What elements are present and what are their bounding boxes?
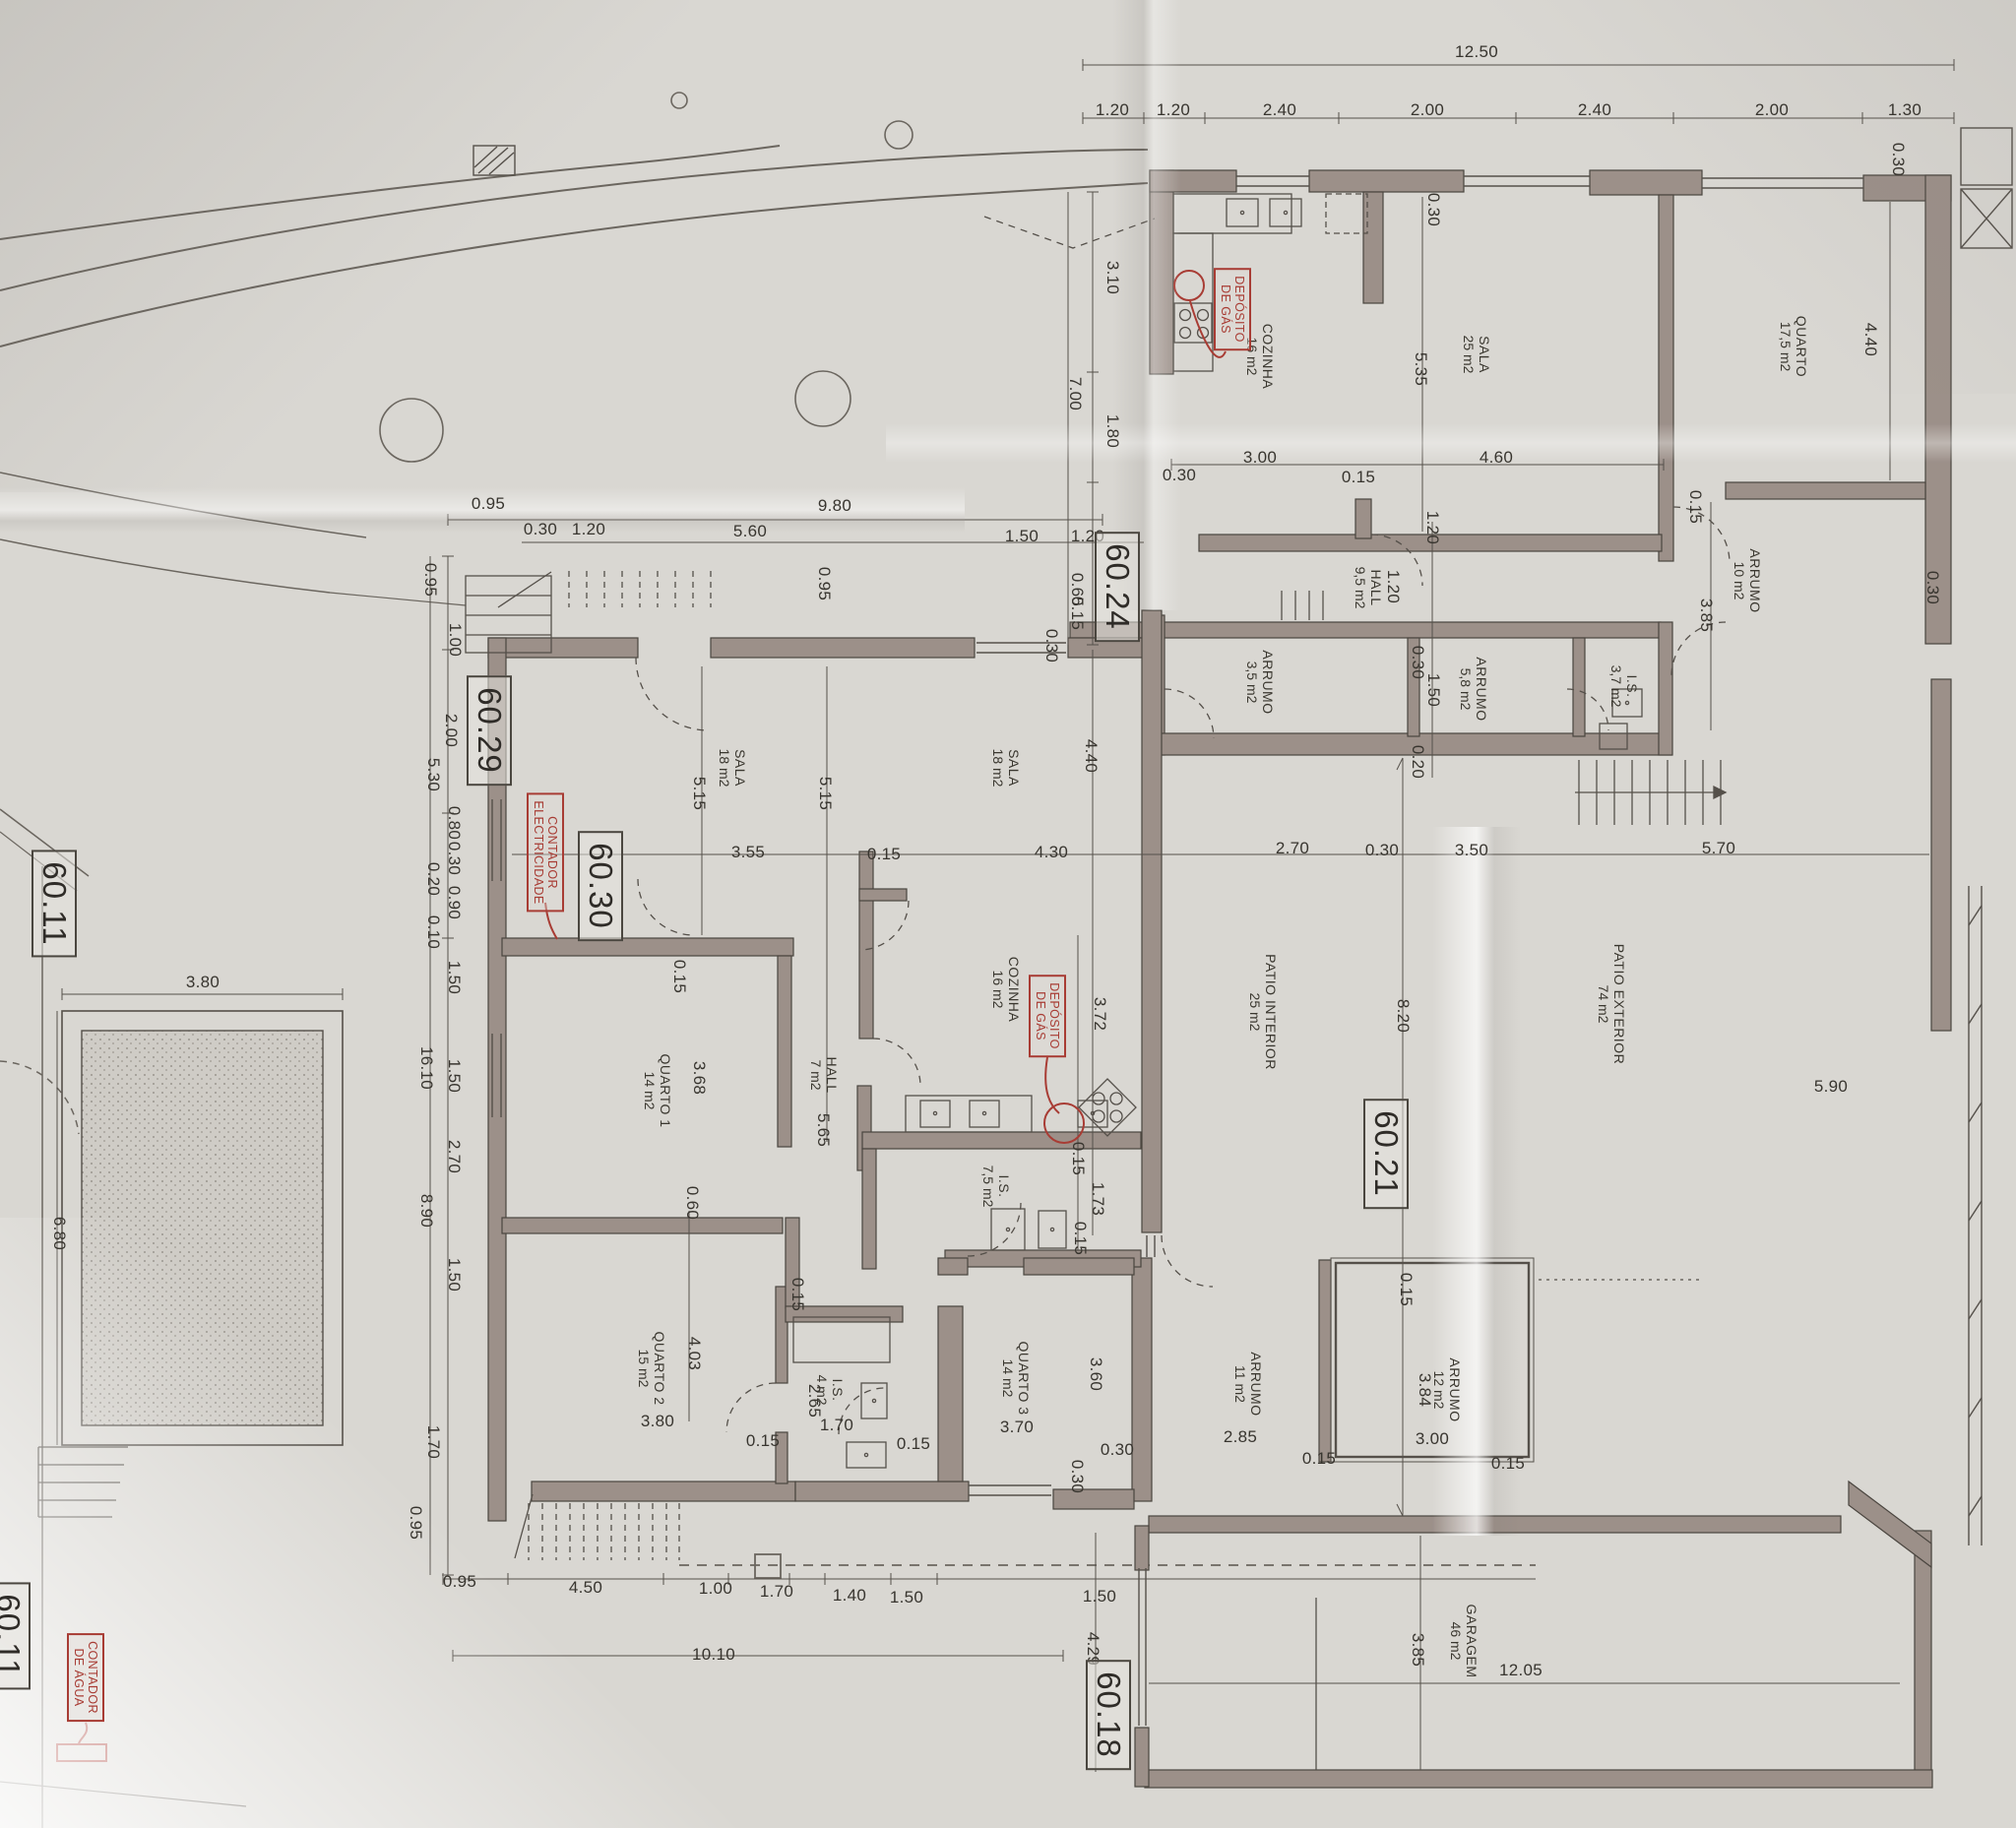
room-name: QUARTO 3: [1016, 1341, 1032, 1415]
dimension-label: 3.72: [1090, 997, 1109, 1031]
dimension-label: 5.30: [423, 758, 443, 791]
dimension-label: 5.90: [1814, 1077, 1848, 1097]
room-label: QUARTO17,5 m2: [1778, 316, 1809, 377]
dimension-label: 3.00: [1243, 448, 1277, 468]
room-name: PATIO INTERIOR: [1263, 954, 1279, 1070]
dimension-label: 4.40: [1860, 323, 1880, 356]
dimension-label: 3.80: [641, 1412, 674, 1431]
room-area: 16 m2: [990, 957, 1006, 1023]
dimension-label: 12.50: [1455, 42, 1498, 62]
room-name: SALA: [1006, 749, 1022, 788]
dimension-label: 1.20: [1422, 511, 1442, 544]
dimension-label: 2.00: [1755, 100, 1789, 120]
dimension-label: 5.65: [813, 1113, 833, 1147]
room-name: QUARTO 1: [658, 1053, 673, 1127]
red-annotation-line: ELECTRICIDADE: [532, 800, 545, 904]
plan-drawing: [0, 0, 2016, 1828]
room-area: 12 m2: [1431, 1357, 1447, 1421]
dimension-label: 0.20: [1408, 745, 1427, 779]
red-annotation-label: CONTADORELECTRICIDADE: [527, 792, 564, 912]
dimension-label: 4.40: [1081, 739, 1101, 773]
dimension-label: 8.90: [416, 1194, 436, 1228]
pool-steps: [38, 1447, 128, 1517]
dimension-label: 2.00: [1411, 100, 1444, 120]
dimension-label: 0.15: [746, 1431, 780, 1451]
dimension-label: 0.15: [1302, 1449, 1336, 1469]
dimension-label: 1.40: [833, 1586, 866, 1606]
dimension-label: 0.15: [1685, 490, 1705, 524]
dimension-label: 5.15: [689, 777, 709, 810]
red-annotation-label: DEPÓSITODE GÁS: [1214, 268, 1251, 350]
red-annotation-line: CONTADOR: [545, 800, 559, 904]
room-label: ARRUMO3,5 m2: [1244, 650, 1276, 714]
dimension-label: 0.15: [1491, 1454, 1525, 1474]
dimension-label: 5.70: [1702, 839, 1735, 858]
dimension-label: 7.00: [1065, 377, 1085, 410]
dimension-label: 0.95: [472, 494, 505, 514]
room-area: 7 m2: [808, 1056, 824, 1093]
dimension-label: 5.15: [815, 777, 835, 810]
dimension-label: 3.68: [689, 1061, 709, 1095]
room-label: HALL9,5 m2: [1353, 567, 1384, 609]
room-name: SALA: [732, 749, 748, 788]
room-area: 10 m2: [1732, 548, 1747, 612]
dimension-label: 3.85: [1696, 599, 1716, 632]
dimension-label: 3.85: [1408, 1633, 1427, 1667]
room-area: 15 m2: [636, 1331, 652, 1405]
room-label: ARRUMO12 m2: [1431, 1357, 1463, 1421]
dimension-label: 16.10: [416, 1046, 436, 1090]
dimension-label: 0.15: [1070, 1222, 1090, 1255]
dimension-label: 1.50: [890, 1588, 923, 1607]
red-annotation-line: DEPÓSITO: [1232, 276, 1246, 343]
trees-layer: [380, 93, 913, 462]
room-area: 14 m2: [1000, 1341, 1016, 1415]
dimension-label: 3.10: [1102, 261, 1122, 294]
room-area: 9,5 m2: [1353, 567, 1368, 609]
dimension-label: 1.50: [444, 961, 464, 994]
dimension-label: 1.00: [445, 623, 465, 657]
red-annotation-line: DE GÁS: [1034, 982, 1047, 1049]
dimension-label: 1.50: [444, 1258, 464, 1292]
room-name: I.S.: [1624, 665, 1640, 708]
dimension-label: 2.70: [1276, 839, 1309, 858]
dimension-label: 10.10: [692, 1645, 735, 1665]
room-area: 18 m2: [990, 749, 1006, 788]
dimension-label: 2.40: [1578, 100, 1611, 120]
room-name: ARRUMO: [1260, 650, 1276, 714]
dimension-label: 0.30: [1067, 1460, 1087, 1493]
room-label: ARRUMO5,8 m2: [1458, 657, 1489, 721]
swimming-pool: [38, 1011, 343, 1517]
dimension-label: 1.70: [820, 1416, 853, 1435]
room-label: I.S.3,7 m2: [1608, 665, 1640, 708]
dimension-label: 4.60: [1480, 448, 1513, 468]
dimension-label: 1.50: [444, 1059, 464, 1093]
parcel-reference-label: 60.18: [1086, 1660, 1131, 1770]
room-area: 4 m2: [814, 1374, 830, 1405]
dimension-label: 1.70: [423, 1425, 443, 1459]
dimension-label: 0.30: [1041, 629, 1061, 662]
room-name: ARRUMO: [1474, 657, 1489, 721]
room-area: 3,7 m2: [1608, 665, 1624, 708]
room-area: 46 m2: [1448, 1604, 1464, 1677]
dimension-label: 5.60: [733, 522, 767, 541]
dimension-label: 0.15: [897, 1434, 930, 1454]
room-name: HALL: [1368, 567, 1384, 609]
dimension-label: 1.50: [1423, 673, 1443, 707]
room-name: PATIO EXTERIOR: [1611, 944, 1627, 1064]
dimension-label: 3.55: [731, 843, 765, 862]
dimension-label: 0.60: [682, 1186, 702, 1220]
room-name: I.S.: [830, 1374, 846, 1405]
room-area: 14 m2: [642, 1053, 658, 1127]
dimension-label: 1.00: [699, 1579, 732, 1599]
dimension-label: 4.30: [1035, 843, 1068, 862]
dimension-label: 1.20: [1096, 100, 1129, 120]
room-area: 25 m2: [1247, 954, 1263, 1070]
parcel-reference-label: 60.29: [467, 675, 512, 786]
dimension-label: 0.30: [1101, 1440, 1134, 1460]
walls-layer: [488, 170, 1951, 1788]
room-label: QUARTO 314 m2: [1000, 1341, 1032, 1415]
dimension-label: 1.30: [1888, 100, 1921, 120]
room-area: 3,5 m2: [1244, 650, 1260, 714]
dimension-label: 0.15: [867, 845, 901, 864]
dimension-label: 1.20: [572, 520, 605, 539]
dimension-label: 0.15: [787, 1278, 807, 1311]
fixtures-layer: [793, 194, 1642, 1770]
dimension-label: 0.95: [814, 567, 834, 600]
room-area: 74 m2: [1596, 944, 1611, 1064]
dimension-label: 1.73: [1088, 1182, 1107, 1216]
dimension-label: 0.95: [406, 1506, 425, 1540]
parcel-reference-label: 60.21: [1363, 1099, 1409, 1209]
dimension-label: 0.30: [1888, 143, 1908, 176]
dimension-label: 0.15: [1342, 468, 1375, 487]
room-name: QUARTO 2: [652, 1331, 667, 1405]
room-label: HALL7 m2: [808, 1056, 840, 1093]
dimension-label: 2.70: [444, 1140, 464, 1173]
dimension-label: 1.50: [1083, 1587, 1116, 1607]
dimension-label: 6.80: [49, 1217, 69, 1250]
dimension-label: 4.50: [569, 1578, 602, 1598]
room-name: ARRUMO: [1447, 1357, 1463, 1421]
room-label: SALA18 m2: [717, 749, 748, 788]
dimension-label: 0.90: [444, 886, 464, 919]
dimension-label: 2.00: [441, 714, 461, 747]
room-label: QUARTO 114 m2: [642, 1053, 673, 1127]
dimension-label: 0.30: [1365, 841, 1399, 860]
red-annotation-label: DEPÓSITODE GÁS: [1029, 975, 1066, 1057]
floor-plan-photo: 12.501.201.202.402.002.402.001.300.300.3…: [0, 0, 2016, 1828]
dimension-label: 1.50: [1005, 527, 1039, 546]
room-area: 11 m2: [1232, 1352, 1248, 1416]
room-label: PATIO INTERIOR25 m2: [1247, 954, 1279, 1070]
room-area: 7,5 m2: [980, 1166, 996, 1208]
room-name: COZINHA: [1260, 324, 1276, 390]
room-label: ARRUMO10 m2: [1732, 548, 1763, 612]
dimension-label: 3.60: [1086, 1357, 1105, 1391]
dimension-label: 1.20: [1383, 570, 1403, 603]
room-label: SALA25 m2: [1461, 336, 1492, 374]
room-label: PATIO EXTERIOR74 m2: [1596, 944, 1627, 1064]
dimension-label: 9.80: [818, 496, 851, 516]
dimension-label: 12.05: [1499, 1661, 1543, 1680]
dimension-label: 4.03: [684, 1337, 704, 1370]
dimension-label: 0.10: [423, 915, 443, 949]
room-name: COZINHA: [1006, 957, 1022, 1023]
dimension-label: 0.30: [1163, 466, 1196, 485]
parcel-reference-label: 60.30: [578, 831, 623, 941]
dimension-label: 0.95: [420, 563, 440, 597]
room-area: 18 m2: [717, 749, 732, 788]
room-name: GARAGEM: [1464, 1604, 1480, 1677]
dimension-label: 1.80: [1102, 414, 1122, 448]
room-name: ARRUMO: [1747, 548, 1763, 612]
doors-layer: [636, 217, 1730, 1434]
red-annotation-line: DE ÁGUA: [72, 1641, 86, 1714]
dimension-label: 1.70: [760, 1582, 793, 1602]
room-name: HALL: [824, 1056, 840, 1093]
room-label: QUARTO 215 m2: [636, 1331, 667, 1405]
parcel-reference-label: 60.11: [0, 1582, 31, 1689]
dimension-label: 0.30: [444, 842, 464, 875]
dimension-label: 3.70: [1000, 1418, 1034, 1437]
dimension-label: 0.95: [443, 1572, 476, 1592]
dimension-label: 0.15: [1067, 597, 1087, 630]
room-label: COZINHA16 m2: [990, 957, 1022, 1023]
room-name: SALA: [1477, 336, 1492, 374]
dimension-label: 5.35: [1411, 352, 1430, 386]
dimension-label: 2.40: [1263, 100, 1296, 120]
dimension-label: 1.20: [1157, 100, 1190, 120]
room-label: I.S.7,5 m2: [980, 1166, 1012, 1208]
red-annotation-label: CONTADORDE ÁGUA: [67, 1633, 104, 1722]
room-name: ARRUMO: [1248, 1352, 1264, 1416]
room-area: 25 m2: [1461, 336, 1477, 374]
dimension-label: 3.80: [186, 973, 220, 992]
dimension-label: 2.85: [1224, 1427, 1257, 1447]
red-annotation-line: DEPÓSITO: [1047, 982, 1061, 1049]
dimension-label: 0.15: [1396, 1273, 1416, 1306]
room-label: SALA18 m2: [990, 749, 1022, 788]
room-label: ARRUMO11 m2: [1232, 1352, 1264, 1416]
room-area: 17,5 m2: [1778, 316, 1794, 377]
parcel-reference-label: 60.11: [31, 850, 77, 957]
dimension-label: 0.15: [669, 960, 689, 993]
room-area: 5,8 m2: [1458, 657, 1474, 721]
dimension-label: 3.00: [1416, 1429, 1449, 1449]
dimension-label: 0.20: [423, 862, 443, 896]
dimension-label: 8.20: [1393, 999, 1413, 1033]
red-annotation-line: DE GÁS: [1219, 276, 1232, 343]
room-name: I.S.: [996, 1166, 1012, 1208]
room-name: QUARTO: [1794, 316, 1809, 377]
room-label: GARAGEM46 m2: [1448, 1604, 1480, 1677]
dimension-label: 3.50: [1455, 841, 1488, 860]
red-annotation-line: CONTADOR: [86, 1641, 99, 1714]
room-label: I.S.4 m2: [814, 1374, 846, 1405]
dimension-label: 0.30: [1423, 193, 1443, 226]
parcel-reference-label: 60.24: [1095, 532, 1140, 642]
dimension-label: 0.30: [1922, 571, 1942, 604]
dimension-label: 0.15: [1068, 1142, 1088, 1175]
dimension-label: 0.30: [524, 520, 557, 539]
dimension-label: 0.80: [444, 806, 464, 840]
